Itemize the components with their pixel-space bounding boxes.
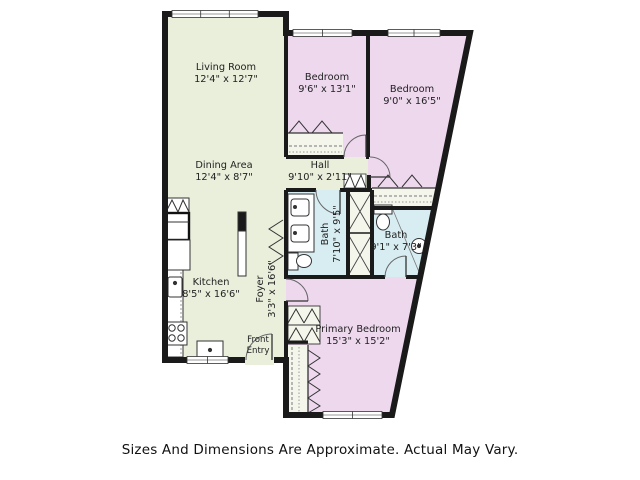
primary-closet-strip-fill (286, 345, 308, 415)
living-room-label: Living Room (196, 62, 256, 73)
floor-plan: Living Room 12'4" x 12'7" Bedroom 9'6" x… (0, 0, 640, 480)
dining-area-dims: 12'4" x 8'7" (195, 172, 253, 183)
bath-2-label: Bath (385, 230, 408, 241)
floor-plan-page: Living Room 12'4" x 12'7" Bedroom 9'6" x… (0, 0, 640, 480)
bedroom-1-closet-fill (286, 133, 343, 157)
bath-1-label: Bath (320, 223, 331, 246)
bath-2-dims: 9'1" x 7'3" (370, 242, 421, 253)
sink-icon (291, 225, 309, 242)
bedroom-1-dims: 9'6" x 13'1" (298, 84, 356, 95)
bedroom-2-label: Bedroom (390, 84, 434, 95)
bedroom-1-label: Bedroom (305, 72, 349, 83)
foyer-dims: 3'3" x 16'6" (267, 260, 278, 318)
front-entry-label-line2: Entry (247, 346, 270, 356)
pantry-icon (166, 198, 189, 213)
kitchen-peninsula (238, 212, 246, 276)
kitchen-label: Kitchen (193, 277, 230, 288)
foyer-label: Foyer (255, 274, 266, 302)
bath1-vanity (288, 194, 314, 252)
hall-dims: 9'10" x 2'11" (288, 172, 352, 183)
disclaimer-text: Sizes And Dimensions Are Approximate. Ac… (0, 442, 640, 458)
kitchen-counter (166, 240, 190, 270)
sink-icon (291, 199, 309, 216)
kitchen-dims: 8'5" x 16'6" (182, 289, 240, 300)
primary-bedroom-window (323, 412, 382, 419)
living-room-window (172, 11, 258, 18)
kitchen-sink-icon (168, 277, 182, 297)
dining-area-label: Dining Area (195, 160, 252, 171)
front-entry-opening (245, 355, 274, 365)
hall-label: Hall (311, 160, 330, 171)
bath-1-dims: 7'10" x 9'5" (332, 205, 343, 263)
living-room-dims: 12'4" x 12'7" (194, 74, 258, 85)
front-entry-label-line1: Front (247, 335, 269, 345)
stove-icon (166, 322, 187, 345)
fridge-icon (166, 213, 189, 240)
bedroom-2-window (388, 30, 440, 37)
primary-bedroom-dims: 15'3" x 15'2" (326, 336, 390, 347)
bedroom-2-dims: 9'0" x 16'5" (383, 96, 441, 107)
primary-bedroom-label: Primary Bedroom (315, 324, 400, 335)
kitchen-window (187, 357, 228, 364)
bedroom-1-window (293, 30, 352, 37)
